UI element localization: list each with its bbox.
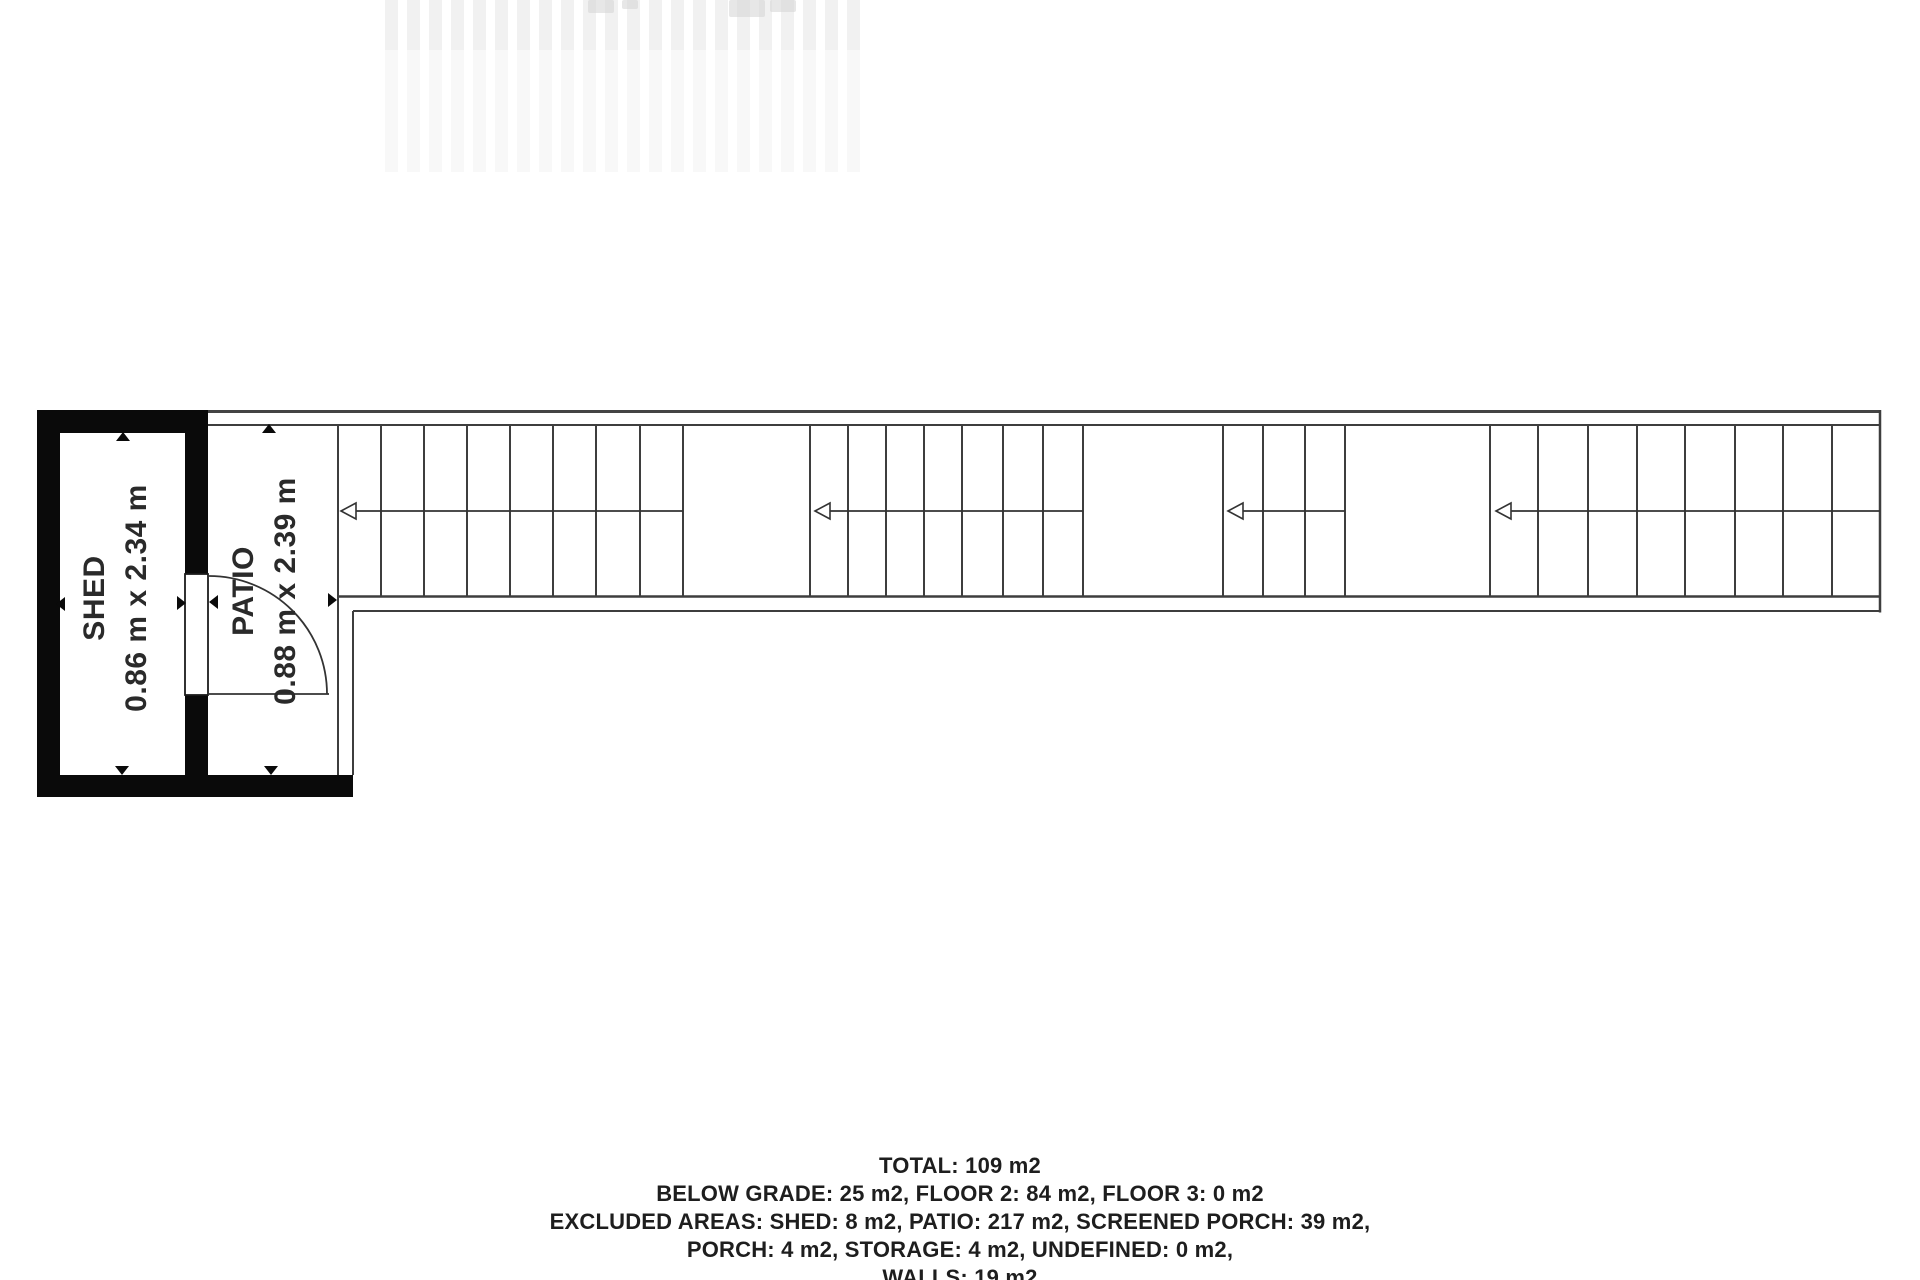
- summary-total: TOTAL: 109 m2: [0, 1152, 1920, 1180]
- room-dimensions: 0.86 m x 2.34 m: [116, 484, 158, 712]
- stair-direction-arrow: [1228, 503, 1345, 519]
- stair-direction-arrows: [341, 503, 1880, 519]
- door-opening: [185, 574, 208, 695]
- stair-direction-arrow: [341, 503, 683, 519]
- arrowhead-left-icon: [341, 503, 356, 519]
- stair-strip: [208, 410, 1881, 775]
- shed-marker-down-icon: [115, 766, 129, 775]
- stair-direction-arrow: [1496, 503, 1880, 519]
- patio-marker-down-icon: [264, 766, 278, 775]
- arrowhead-left-icon: [815, 503, 830, 519]
- arrowhead-left-icon: [1496, 503, 1511, 519]
- shed-marker-up-icon: [116, 432, 130, 441]
- room-name: SHED: [74, 484, 116, 712]
- wall-left: [37, 410, 60, 797]
- summary-line: WALLS: 19 m2: [0, 1264, 1920, 1280]
- room-name: PATIO: [223, 477, 265, 705]
- wall-divider-upper: [185, 410, 208, 575]
- wall-divider-lower: [185, 695, 208, 775]
- patio-marker-right-icon: [328, 593, 337, 607]
- wall-top: [37, 410, 208, 433]
- arrowhead-left-icon: [1228, 503, 1243, 519]
- room-dimensions: 0.88 m x 2.39 m: [265, 477, 307, 705]
- area-summary: TOTAL: 109 m2 BELOW GRADE: 25 m2, FLOOR …: [0, 1152, 1920, 1280]
- summary-line: PORCH: 4 m2, STORAGE: 4 m2, UNDEFINED: 0…: [0, 1236, 1920, 1264]
- patio-label: PATIO 0.88 m x 2.39 m: [223, 477, 307, 705]
- wall-bottom: [37, 775, 353, 797]
- summary-line: EXCLUDED AREAS: SHED: 8 m2, PATIO: 217 m…: [0, 1208, 1920, 1236]
- shed-label: SHED 0.86 m x 2.34 m: [74, 484, 158, 712]
- floorplan-page: SHED 0.86 m x 2.34 m PATIO 0.88 m x 2.39…: [0, 0, 1920, 1280]
- patio-marker-left-icon: [209, 595, 218, 609]
- summary-line: BELOW GRADE: 25 m2, FLOOR 2: 84 m2, FLOO…: [0, 1180, 1920, 1208]
